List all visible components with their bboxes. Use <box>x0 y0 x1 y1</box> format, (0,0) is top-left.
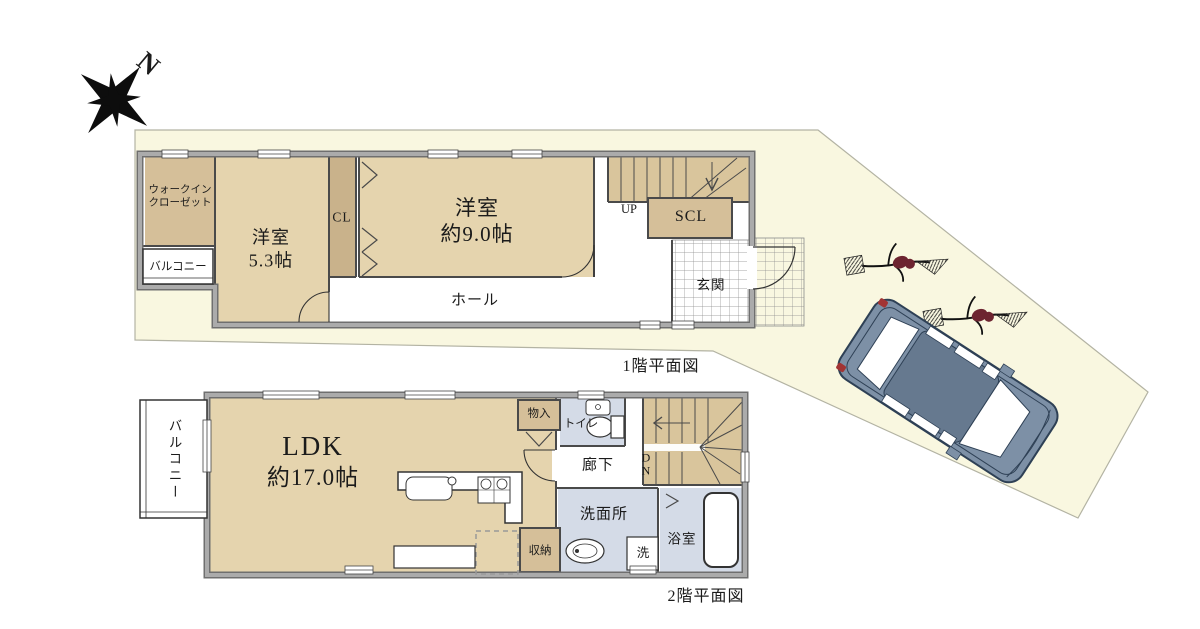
floor1-building <box>140 150 804 329</box>
washbasin-icon <box>566 539 604 563</box>
bathtub-icon <box>704 493 738 567</box>
balcony-2f-outline <box>140 400 207 518</box>
counter-board <box>394 546 475 568</box>
balcony-1f-outline <box>143 249 213 284</box>
floorplan-drawing <box>0 0 1200 629</box>
laundry-space <box>627 537 658 570</box>
floor2-building <box>140 391 749 575</box>
floorplan-page: N ウォークイン クローゼット バルコニー 洋室 5.3帖 CL 洋室 約9.0… <box>0 0 1200 629</box>
